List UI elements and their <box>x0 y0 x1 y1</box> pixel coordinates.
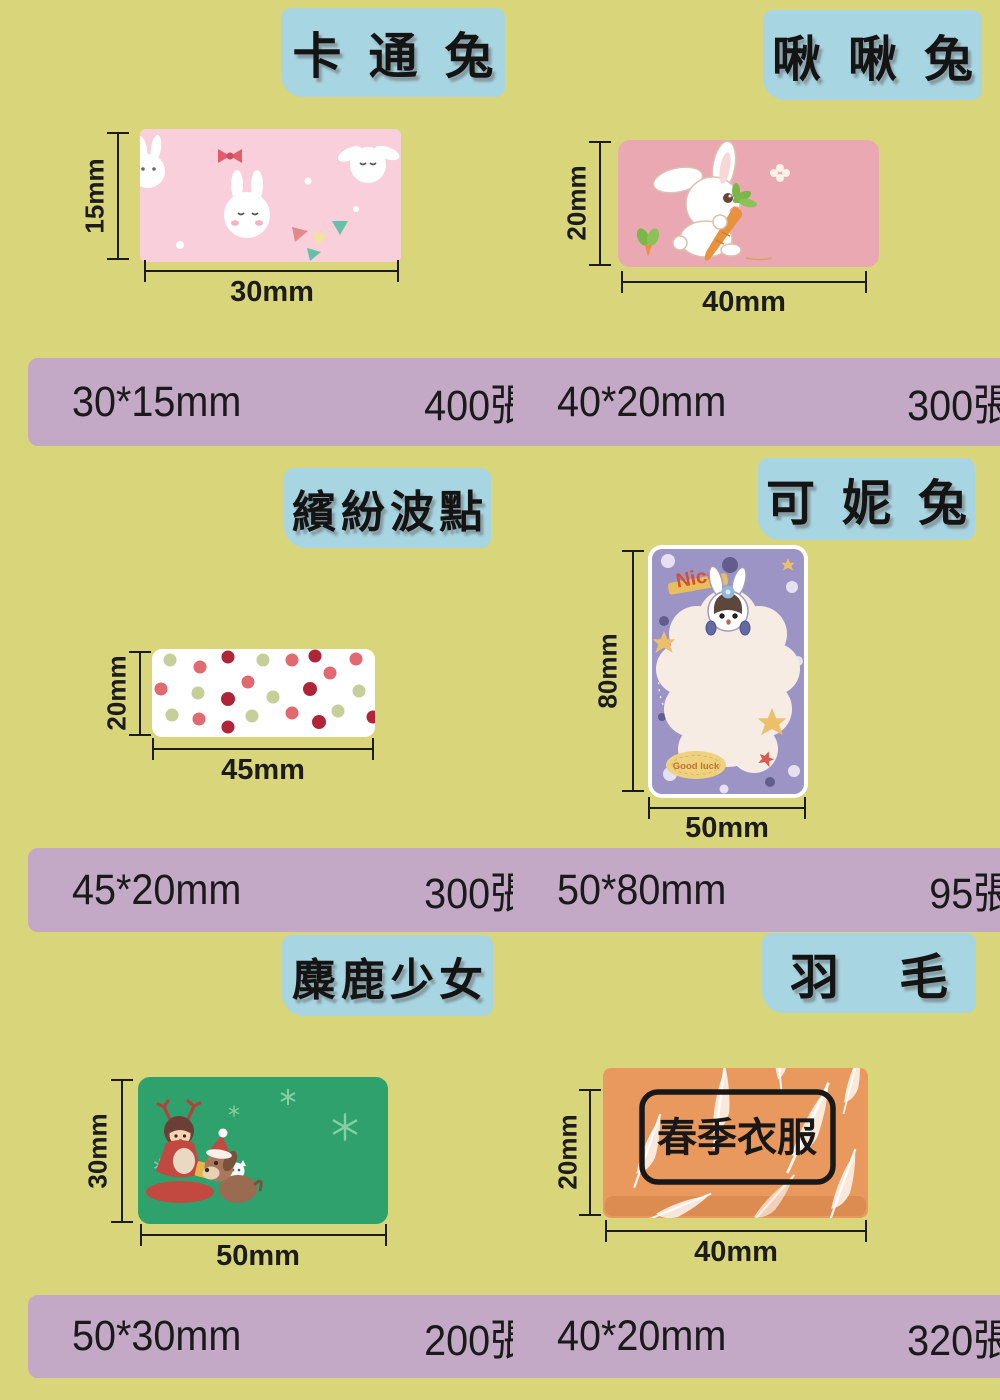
product-size-infographic: 卡通兔 <box>0 0 1000 1400</box>
spec-bar: 40*20mm 300張 <box>513 358 1000 446</box>
height-dimension-label: 20mm <box>553 1114 584 1189</box>
spec-size: 50*30mm <box>72 1312 241 1361</box>
spec-bar: 30*15mm 400張 <box>28 358 574 446</box>
sticker-preview-deer-girl <box>138 1077 388 1224</box>
height-dimension-label: 15mm <box>80 158 111 233</box>
width-dimension-line <box>621 281 867 283</box>
spec-size: 50*80mm <box>557 866 726 915</box>
product-title-chirp-rabbit: 啾啾兔 <box>763 10 982 100</box>
spec-quantity: 320張 <box>907 1306 1000 1368</box>
sticker-preview-polka-dots <box>152 649 375 737</box>
product-title-text: 啾啾兔 <box>772 20 1000 91</box>
width-dimension-label: 50mm <box>685 812 769 845</box>
sticker-preview-chirp-rabbit <box>618 140 879 267</box>
product-title-text: 繽紛波點 <box>292 476 488 540</box>
sticker-preview-feather: 春季衣服 <box>603 1068 868 1218</box>
sticker-preview-cartoon-rabbit <box>140 129 401 262</box>
spec-bar: 40*20mm 320張 <box>513 1295 1000 1378</box>
width-dimension-label: 30mm <box>230 276 314 309</box>
height-dimension-line <box>117 132 119 260</box>
product-title-cartoon-rabbit: 卡通兔 <box>281 8 505 97</box>
spec-size: 40*20mm <box>557 378 726 427</box>
width-dimension-line <box>140 1234 387 1236</box>
product-title-text: 麋鹿少女 <box>292 944 488 1008</box>
width-dimension-label: 45mm <box>221 754 305 787</box>
height-dimension-line <box>632 550 634 792</box>
good-luck-text: Good luck <box>673 761 720 772</box>
product-title-deer-girl: 麋鹿少女 <box>282 935 493 1016</box>
height-dimension-line <box>589 1089 591 1216</box>
dot-decor <box>353 206 359 212</box>
spec-size: 40*20mm <box>557 1312 726 1361</box>
spec-bar: 50*30mm 200張 <box>28 1295 574 1378</box>
product-title-cony-rabbit: 可妮兔 <box>758 458 975 540</box>
spec-quantity: 300張 <box>907 371 1000 433</box>
product-title-text: 可妮兔 <box>766 464 994 535</box>
spec-size: 30*15mm <box>72 378 241 427</box>
product-title-feather: 羽毛 <box>762 933 976 1013</box>
width-dimension-label: 40mm <box>694 1236 778 1269</box>
sticker-preview-cony-rabbit: Nice Good luck <box>648 545 808 798</box>
height-dimension-label: 80mm <box>593 633 624 708</box>
width-dimension-line <box>144 270 399 272</box>
product-title-polka-dots: 繽紛波點 <box>284 468 491 548</box>
tag-text: 春季衣服 <box>657 1116 817 1160</box>
product-title-text: 羽毛 <box>790 938 1000 1009</box>
dot-decor <box>176 241 184 249</box>
height-dimension-line <box>599 141 601 266</box>
width-dimension-label: 40mm <box>702 286 786 319</box>
spec-bar: 45*20mm 300張 <box>28 848 574 932</box>
width-dimension-line <box>605 1230 867 1232</box>
spec-bar: 50*80mm 95張 <box>513 848 1000 932</box>
width-dimension-label: 50mm <box>216 1240 300 1273</box>
spec-size: 45*20mm <box>72 866 241 915</box>
width-dimension-line <box>648 807 806 809</box>
height-dimension-label: 20mm <box>562 165 593 240</box>
height-dimension-label: 20mm <box>102 655 133 730</box>
spec-quantity: 95張 <box>929 859 1000 921</box>
height-dimension-line <box>121 1079 123 1223</box>
good-luck-badge: Good luck <box>666 751 726 779</box>
product-title-text: 卡通兔 <box>292 17 520 88</box>
width-dimension-line <box>152 748 374 750</box>
height-dimension-label: 30mm <box>83 1113 114 1188</box>
dot-decor <box>305 178 312 185</box>
height-dimension-line <box>139 651 141 736</box>
